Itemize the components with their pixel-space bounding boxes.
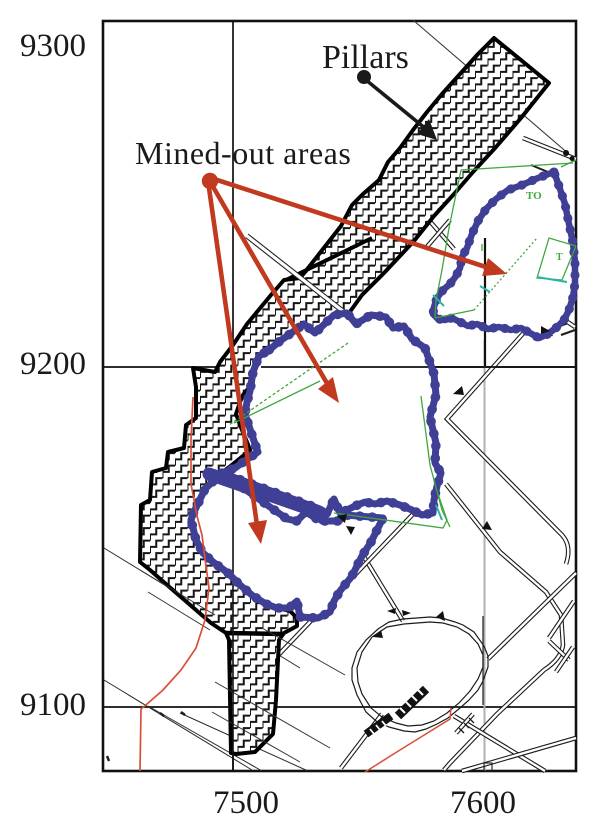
svg-text:TO: TO — [526, 190, 542, 202]
svg-text:7500: 7500 — [213, 785, 279, 821]
svg-text:Pillars: Pillars — [322, 39, 409, 76]
svg-text:Mined-out areas: Mined-out areas — [135, 135, 351, 171]
svg-text:T: T — [556, 252, 563, 263]
svg-text:7600: 7600 — [450, 785, 516, 821]
svg-text:9300: 9300 — [20, 28, 86, 64]
svg-text:9100: 9100 — [20, 687, 86, 723]
svg-text:9200: 9200 — [20, 346, 86, 382]
